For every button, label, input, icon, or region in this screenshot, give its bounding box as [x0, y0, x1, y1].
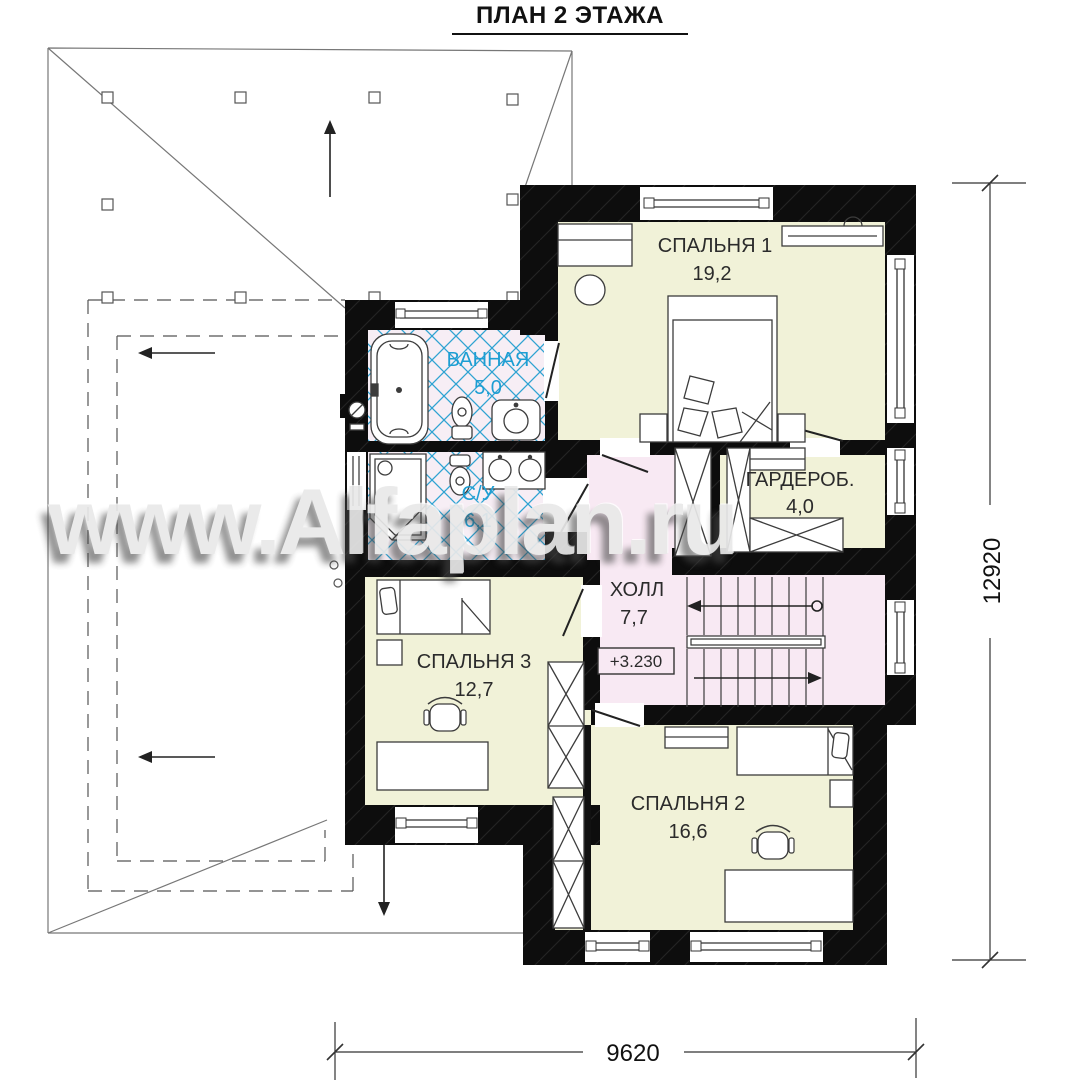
- bathtub-icon: [371, 334, 428, 444]
- bed-bedroom1: [668, 296, 777, 442]
- label-wardrobe-name: ГАРДЕРОБ.: [746, 469, 855, 491]
- dimension-right: 12920: [952, 175, 1026, 968]
- label-wardrobe-area: 4,0: [786, 496, 814, 518]
- label-wc-name: С/У: [462, 483, 495, 505]
- window-bedroom2-bottom-right: [690, 932, 823, 962]
- window-wc-left: [347, 452, 366, 510]
- label-bedroom3-name: СПАЛЬНЯ 3: [417, 651, 531, 673]
- shelf-wardrobe: [750, 448, 805, 470]
- label-bedroom1-area: 19,2: [693, 263, 732, 285]
- cabinet-corridor: [675, 448, 711, 556]
- cabinet-wardrobe-tall: [727, 448, 750, 552]
- desk-bedroom2: [725, 870, 853, 922]
- nightstand-bedroom1-right: [778, 414, 805, 442]
- nightstand-bedroom1-left: [640, 414, 667, 442]
- towel-dryer-icon: [349, 402, 365, 430]
- desk-bedroom3: [377, 742, 488, 790]
- label-bathroom-name: ВАННАЯ: [447, 349, 530, 371]
- dimension-right-value: 12920: [979, 538, 1006, 605]
- bed-bedroom2: [737, 727, 853, 775]
- roof-dashed-outline: [88, 300, 353, 891]
- toilet-bathroom-icon: [452, 397, 472, 439]
- wardrobe-bedroom2: [553, 797, 584, 928]
- label-hall-name: ХОЛЛ: [610, 579, 664, 601]
- bed-bedroom3: [377, 580, 490, 634]
- window-bedroom3-bottom: [395, 807, 478, 843]
- label-hall-area: 7,7: [620, 607, 648, 629]
- shower-icon: [370, 454, 426, 540]
- window-bathroom-top: [395, 302, 488, 328]
- window-stairs-right: [887, 600, 914, 675]
- label-bedroom1-name: СПАЛЬНЯ 1: [658, 235, 772, 257]
- level-mark: +3.230: [598, 648, 674, 674]
- nightstand-bedroom3: [377, 640, 402, 665]
- shelf-bedroom2: [665, 727, 728, 748]
- window-wardrobe-right: [887, 448, 914, 515]
- label-bedroom2-name: СПАЛЬНЯ 2: [631, 793, 745, 815]
- roof-markers: [102, 92, 518, 303]
- window-bedroom2-bottom-left: [585, 932, 650, 962]
- cabinet-wardrobe-low: [750, 518, 843, 552]
- label-bathroom-area: 5,0: [474, 377, 502, 399]
- level-mark-value: +3.230: [610, 652, 662, 671]
- window-bedroom1-right: [887, 255, 914, 423]
- wardrobe-bedroom3: [548, 662, 584, 788]
- label-bedroom3-area: 12,7: [455, 679, 494, 701]
- dimension-bottom: 9620: [327, 1018, 924, 1080]
- pouf-bedroom1: [575, 275, 605, 305]
- dimension-bottom-value: 9620: [606, 1040, 659, 1067]
- window-bedroom1-top: [640, 187, 773, 220]
- nightstand-bedroom2: [830, 780, 853, 807]
- label-bedroom2-area: 16,6: [669, 821, 708, 843]
- floor-plan: СПАЛЬНЯ 1 19,2 ВАННАЯ 5,0 С/У 6,1 ГАРДЕР…: [0, 0, 1080, 1080]
- label-wc-area: 6,1: [464, 510, 492, 532]
- shelf-bedroom1: [558, 224, 632, 266]
- sink-bathroom-icon: [492, 400, 540, 440]
